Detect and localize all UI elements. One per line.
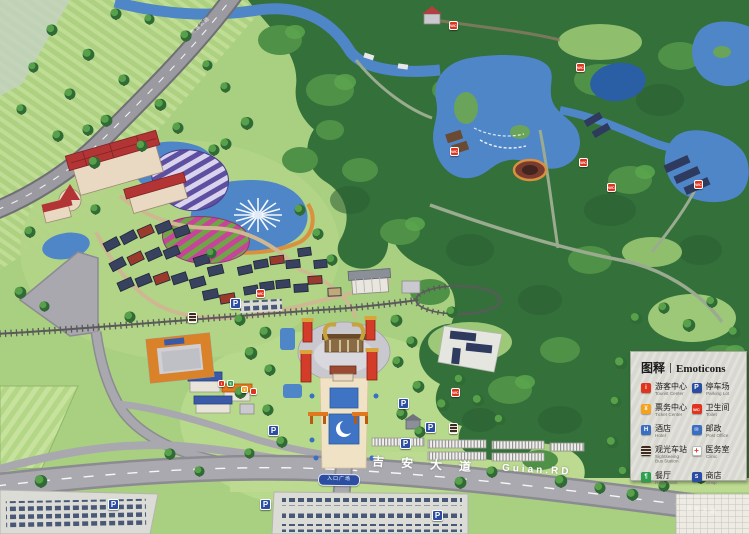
parking-icon: P <box>692 383 702 393</box>
toilet-marker-small <box>250 388 257 395</box>
legend-item-toilet: WC 卫生间Toilet <box>692 404 739 418</box>
legend-title-en: Emoticons <box>676 363 726 375</box>
tourist-center-marker: i <box>218 380 225 387</box>
legend-title: 图释 Emoticons <box>641 359 738 376</box>
parking-marker: P <box>400 438 411 449</box>
toilet-marker: WC <box>576 63 585 72</box>
legend-title-zh: 图释 <box>641 359 665 376</box>
parking-marker: P <box>432 510 443 521</box>
shop-icon: S <box>692 472 702 482</box>
toilet-marker: WC <box>449 21 458 30</box>
legend-grid: i 游客中心Tourist Center P 停车场Parking Lot ¥ … <box>641 383 738 486</box>
road-name-en: Guian.RD <box>502 463 572 478</box>
ticket-center-icon: ¥ <box>641 404 651 414</box>
parking-marker: P <box>398 398 409 409</box>
toilet-marker: WC <box>450 147 459 156</box>
toilet-marker: WC <box>451 388 460 397</box>
ticket-marker: ¥ <box>241 386 248 393</box>
colonial-hall <box>348 269 392 295</box>
courtyard-building <box>146 333 214 383</box>
legend-title-divider <box>670 363 671 373</box>
legend-item-ticket-center: ¥ 票务中心Ticket Center <box>641 404 688 418</box>
legend-item-shop: S 商店Shop <box>692 472 739 486</box>
scenic-area-map: P P P P P P P P WC WC WC WC WC WC WC WC … <box>0 0 749 534</box>
post-icon: ✉ <box>692 425 702 435</box>
clinic-icon: + <box>692 446 702 456</box>
legend-panel: 图释 Emoticons i 游客中心Tourist Center P 停车场P… <box>630 351 747 481</box>
toilet-marker: WC <box>694 180 703 189</box>
hotel-icon: H <box>641 425 651 435</box>
legend-item-tourist-center: i 游客中心Tourist Center <box>641 383 688 397</box>
toilet-marker: WC <box>579 158 588 167</box>
restaurant-icon: ¶ <box>641 472 651 482</box>
legend-item-bus-station: 观光车站Sightseeing Bus Station <box>641 446 688 465</box>
tourist-center-icon: i <box>641 383 651 393</box>
bus-station-marker <box>188 312 197 323</box>
toilet-marker: WC <box>607 183 616 192</box>
toilet-marker: WC <box>256 289 265 298</box>
entrance-sign: 入口广场 <box>318 474 360 487</box>
toilet-icon: WC <box>692 404 702 414</box>
parking-marker: P <box>230 298 241 309</box>
legend-item-clinic: + 医务室Clinic <box>692 446 739 465</box>
restaurant-marker: ¶ <box>227 380 234 387</box>
bus-station-icon <box>641 446 651 456</box>
legend-item-post: ✉ 邮政Post Office <box>692 425 739 439</box>
parking-marker: P <box>268 425 279 436</box>
legend-item-restaurant: ¶ 餐厅Restaurant <box>641 472 688 486</box>
parking-marker: P <box>260 499 271 510</box>
legend-item-hotel: H 酒店Hotel <box>641 425 688 439</box>
parking-marker: P <box>108 499 119 510</box>
parking-marker: P <box>425 422 436 433</box>
legend-item-parking: P 停车场Parking Lot <box>692 383 739 397</box>
bus-station-marker <box>449 423 458 434</box>
